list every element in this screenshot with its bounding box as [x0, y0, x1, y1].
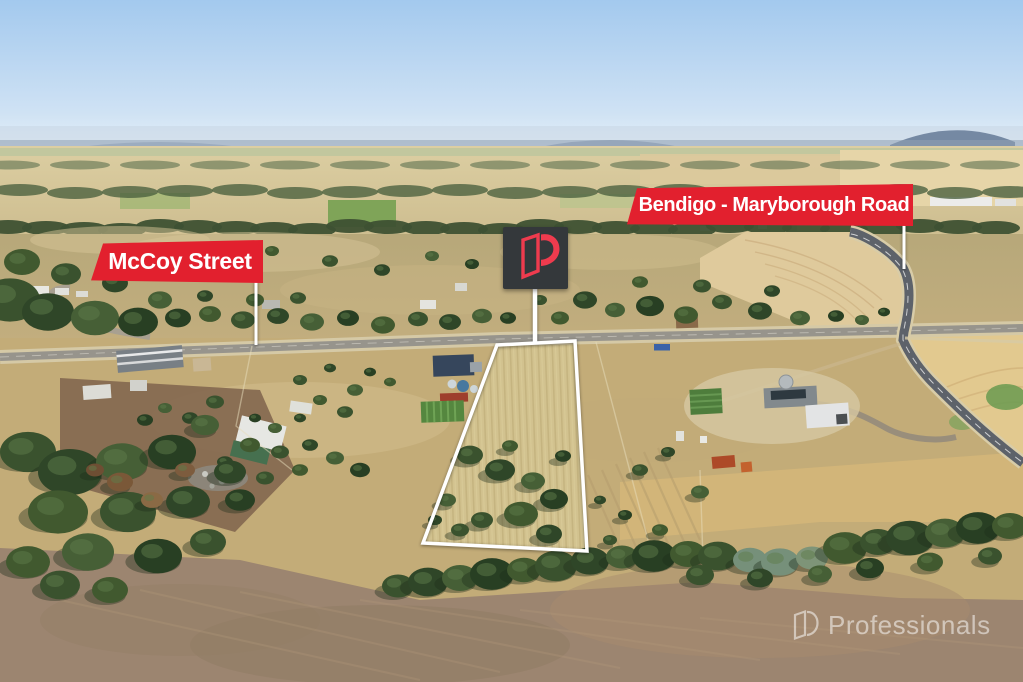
orange-container-small	[741, 461, 753, 472]
professionals-watermark-text: Professionals	[828, 610, 991, 641]
white-shed-small	[83, 384, 112, 400]
hut	[193, 357, 212, 371]
professionals-watermark-logo-icon	[788, 608, 820, 642]
white-shed-tiny	[130, 380, 147, 391]
professionals-logo-marker	[503, 227, 568, 289]
road-label-bendigo-text: Bendigo - Maryborough Road	[639, 194, 910, 217]
garden-rows	[689, 388, 722, 415]
street-label-mccoy-text: McCoy Street	[108, 248, 251, 275]
blue-truck	[654, 344, 670, 351]
professionals-watermark: Professionals	[788, 604, 1003, 646]
aerial-property-photo: McCoy Street Bendigo - Maryborough Road …	[0, 0, 1023, 682]
professionals-p-logo-icon	[503, 227, 568, 289]
round-roof	[779, 375, 793, 389]
road-label-bendigo: Bendigo - Maryborough Road	[627, 184, 913, 226]
street-label-mccoy: McCoy Street	[91, 240, 263, 283]
landscape-photo	[0, 0, 1023, 682]
water-tank	[448, 380, 457, 389]
sky	[0, 0, 1023, 150]
green-crop-plot	[421, 400, 465, 422]
navy-roof-house	[433, 354, 475, 376]
orange-container	[712, 455, 736, 469]
solar-panels	[771, 389, 806, 400]
blue-tank	[457, 380, 469, 392]
